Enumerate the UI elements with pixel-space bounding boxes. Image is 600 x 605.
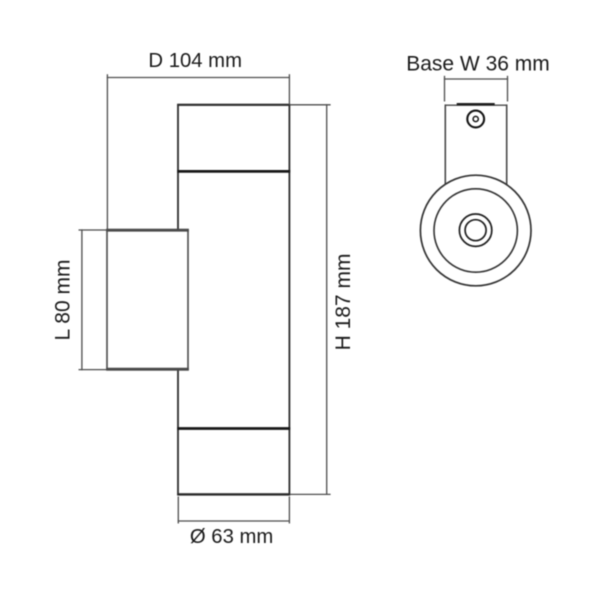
svg-text:D 104 mm: D 104 mm xyxy=(148,50,242,72)
svg-text:Ø 63 mm: Ø 63 mm xyxy=(190,526,273,548)
svg-text:L 80 mm: L 80 mm xyxy=(51,260,74,341)
svg-text:H 187 mm: H 187 mm xyxy=(332,254,355,351)
svg-text:Base W 36 mm: Base W 36 mm xyxy=(406,53,550,76)
